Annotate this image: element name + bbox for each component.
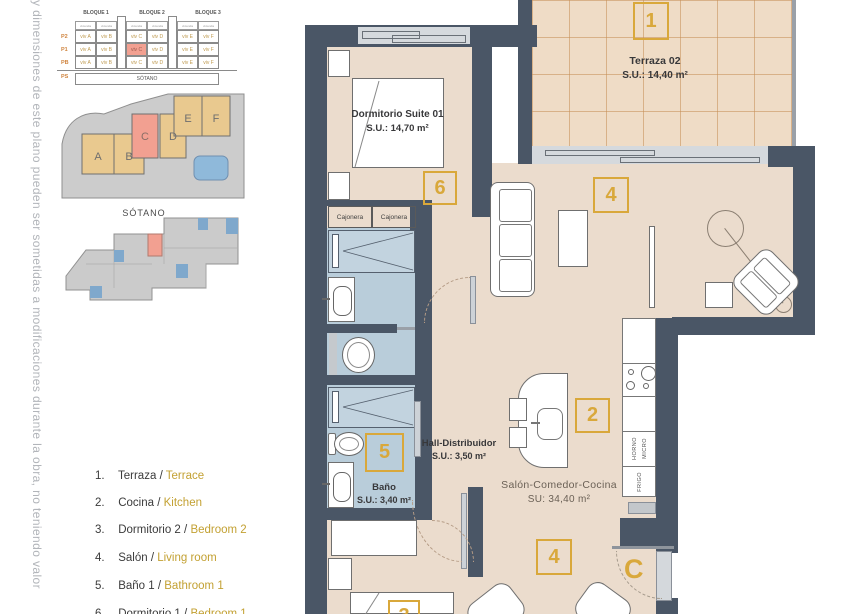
pillow [328, 558, 352, 590]
pillow [328, 50, 350, 77]
basement-title: SÓTANO [122, 208, 165, 218]
wall-thin [397, 327, 415, 330]
room-tag-kitchen: 2 [575, 398, 610, 433]
block-header: BLOQUE 1 [75, 10, 117, 16]
unit-cell: viv D [147, 30, 168, 43]
basement-storage [114, 250, 124, 262]
kitchen-counter: HORNO MICRO FRIGO [622, 318, 656, 497]
unit-subheader: vivienda [147, 21, 168, 30]
cooktop-burner [643, 383, 649, 389]
pillow [328, 172, 350, 200]
block-header: BLOQUE 3 [187, 10, 229, 16]
block-floor-table: BLOQUE 1 BLOQUE 2 BLOQUE 3 P2 P1 PB PS v… [75, 8, 237, 86]
building-label: A [94, 151, 102, 163]
tv-sideboard [649, 226, 655, 308]
oven-micro-unit: HORNO MICRO [623, 431, 657, 466]
wall-segment [468, 487, 483, 577]
legend-item: 4. Salón / Living room [95, 552, 217, 564]
wall-segment [518, 0, 532, 164]
legend-number: 2. [95, 497, 115, 509]
legend-en: Living room [157, 552, 216, 564]
basement-row: SÓTANO [75, 73, 219, 85]
toilet [342, 337, 375, 373]
room-area: S.U.: 14,40 m² [600, 69, 710, 83]
side-table [705, 282, 733, 308]
floor-label: P2 [61, 34, 68, 40]
legend-es: Dormitorio 2 [118, 524, 181, 536]
floor-label: PS [61, 74, 68, 80]
window-pane [392, 35, 466, 43]
floorplan-page: y dimensiones de este plano pueden ser s… [0, 0, 850, 614]
legend-sep: / [158, 580, 161, 592]
exterior-niche [494, 47, 518, 146]
wall-partition [327, 324, 397, 333]
unit-subheader: vivienda [75, 21, 96, 30]
building-label: C [141, 131, 149, 143]
basement-storage [90, 286, 102, 298]
basement-key: SÓTANO [56, 204, 251, 304]
shower-column [332, 391, 339, 423]
island-sink [537, 408, 563, 440]
salon-label: Salón-Comedor-Cocina SU: 34,40 m² [495, 478, 623, 507]
shower-screen [329, 333, 337, 375]
room-name: Dormitorio Suite 01 [340, 108, 455, 122]
unit-subheader: vivienda [96, 21, 117, 30]
wall-partition [327, 375, 415, 385]
legend-item: 3. Dormitorio 2 / Bedroom 2 [95, 524, 247, 536]
unit-cell: viv F [198, 30, 219, 43]
building-label: B [125, 151, 132, 163]
legend-es: Terraza [118, 470, 156, 482]
legend-item: 1. Terraza / Terrace [95, 470, 204, 482]
toilet-bowl [347, 342, 370, 368]
counter-divider [623, 363, 655, 364]
side-disclaimer-text: y dimensiones de este plano pueden ser s… [30, 0, 44, 614]
unit-cell: viv A [75, 56, 96, 69]
sofa-cushion [499, 259, 532, 292]
building-label: E [184, 113, 191, 125]
stool [509, 427, 527, 448]
bathroom-sink [328, 277, 355, 322]
pool [194, 156, 228, 180]
room-name: Salón-Comedor-Cocina [495, 478, 623, 493]
cooktop-burner [626, 381, 635, 390]
legend-es: Baño 1 [118, 580, 154, 592]
unit-cell: viv E [177, 30, 198, 43]
sink-tap [322, 483, 330, 485]
legend-sep: / [160, 470, 163, 482]
legend-en: Bedroom 2 [190, 524, 246, 536]
basement-storage [198, 218, 208, 230]
room-area: SU: 34,40 m² [495, 493, 623, 507]
stool [509, 398, 527, 421]
kitchen-cabinet [628, 502, 656, 514]
shower [328, 230, 415, 273]
wall-segment [672, 317, 815, 335]
wardrobe-cajonera: Cajonera [372, 206, 416, 228]
door-leaf [414, 401, 421, 457]
wardrobe-cajonera: Cajonera [328, 206, 372, 228]
exterior-area [678, 335, 850, 614]
wall-segment [305, 35, 327, 614]
legend-en: Kitchen [164, 497, 202, 509]
wall-shaft [620, 518, 656, 548]
unit-cell: viv E [177, 56, 198, 69]
room-name: Hall-Distribuidor [418, 437, 500, 450]
wall-segment [656, 318, 678, 553]
legend-es: Cocina [118, 497, 154, 509]
shower [328, 387, 415, 428]
wall-segment [793, 164, 815, 335]
floor-label: P1 [61, 47, 68, 53]
room-tag-dining: 4 [536, 539, 572, 575]
hall-label: Hall-Distribuidor S.U.: 3,50 m² [418, 437, 500, 463]
legend-es: Salón [118, 552, 147, 564]
legend-item: 2. Cocina / Kitchen [95, 497, 202, 509]
wall-segment [472, 25, 492, 217]
site-plan-key: A B C D E F [56, 86, 251, 204]
unit-cell: viv B [96, 43, 117, 56]
unit-subheader: vivienda [177, 21, 198, 30]
legend-en: Bathroom 1 [164, 580, 223, 592]
table-divider [57, 70, 237, 71]
room-tag-bathroom: 5 [365, 433, 404, 472]
sink-basin [333, 286, 352, 316]
legend-number: 1. [95, 470, 115, 482]
room-tag-bedroom2: 3 [388, 600, 420, 614]
unit-cell: viv A [75, 30, 96, 43]
oven-label: HORNO [631, 437, 640, 460]
island-tap [531, 422, 540, 424]
legend-number: 3. [95, 524, 115, 536]
room-tag-living: 4 [593, 177, 629, 213]
stair-tower [168, 16, 177, 69]
room-area: S.U.: 3,50 m² [418, 450, 500, 463]
entry-door-header [612, 546, 674, 549]
legend-number: 6. [95, 608, 115, 614]
sliding-pane [545, 150, 655, 156]
toilet-bowl [339, 437, 359, 451]
building-label: D [169, 131, 177, 143]
room-name: Baño [348, 481, 420, 494]
coffee-table [558, 210, 588, 267]
legend-item: 5. Baño 1 / Bathroom 1 [95, 580, 224, 592]
legend-en: Bedroom 1 [190, 608, 246, 614]
shower-column [332, 234, 339, 268]
legend-es: Dormitorio 1 [118, 608, 181, 614]
room-area: S.U.: 14,70 m² [340, 122, 455, 135]
door-leaf [470, 276, 476, 324]
sink-tap [322, 298, 330, 300]
counter-divider [623, 396, 655, 397]
sofa [490, 182, 535, 297]
bedroom-label: Dormitorio Suite 01 S.U.: 14,70 m² [340, 108, 455, 135]
room-tag-bedroom: 6 [423, 171, 457, 205]
unit-cell: viv B [96, 56, 117, 69]
legend-sep: / [184, 524, 187, 536]
terrace-label: Terraza 02 S.U.: 14,40 m² [600, 54, 710, 83]
floor-label: PB [61, 60, 69, 66]
legend-sep: / [157, 497, 160, 509]
sliding-pane [620, 157, 760, 163]
legend-en: Terrace [166, 470, 204, 482]
room-name: Terraza 02 [600, 54, 710, 69]
basement-storage [176, 264, 188, 278]
entry-letter: C [624, 554, 644, 585]
wall-segment [415, 228, 432, 515]
unit-cell: viv C [126, 56, 147, 69]
building-label: F [213, 113, 220, 125]
toilet [334, 432, 364, 456]
room-area: S.U.: 3,40 m² [348, 494, 420, 507]
legend-sep: / [151, 552, 154, 564]
wall-thin [792, 0, 796, 146]
unit-cell: viv C [126, 30, 147, 43]
sofa-cushion [499, 224, 532, 257]
legend-number: 5. [95, 580, 115, 592]
basement-storage [226, 218, 238, 234]
exterior-door-slice [672, 548, 682, 601]
wardrobe [331, 520, 417, 556]
unit-subheader: vivienda [198, 21, 219, 30]
fridge-label: FRIGO [636, 472, 645, 492]
bathroom-label: Baño S.U.: 3,40 m² [348, 481, 420, 507]
unit-cell: viv D [147, 43, 168, 56]
unit-cell: viv A [75, 43, 96, 56]
room-tag-terrace: 1 [633, 2, 669, 40]
unit-cell: viv D [147, 56, 168, 69]
unit-cell: viv F [198, 56, 219, 69]
cooktop-burner [641, 366, 656, 381]
block-header: BLOQUE 2 [131, 10, 173, 16]
unit-cell: viv E [177, 43, 198, 56]
legend-item: 6. Dormitorio 1 / Bedroom 1 [95, 608, 247, 614]
basement-highlight-cell [148, 234, 162, 256]
stair-tower [117, 16, 126, 69]
unit-cell: viv B [96, 30, 117, 43]
micro-label: MICRO [641, 438, 650, 459]
unit-cell: viv F [198, 43, 219, 56]
legend-number: 4. [95, 552, 115, 564]
unit-cell-highlighted: viv C [126, 43, 147, 56]
unit-subheader: vivienda [126, 21, 147, 30]
sofa-cushion [499, 189, 532, 222]
fridge-unit: FRIGO [623, 466, 657, 498]
legend-sep: / [184, 608, 187, 614]
cooktop-burner [628, 369, 634, 375]
